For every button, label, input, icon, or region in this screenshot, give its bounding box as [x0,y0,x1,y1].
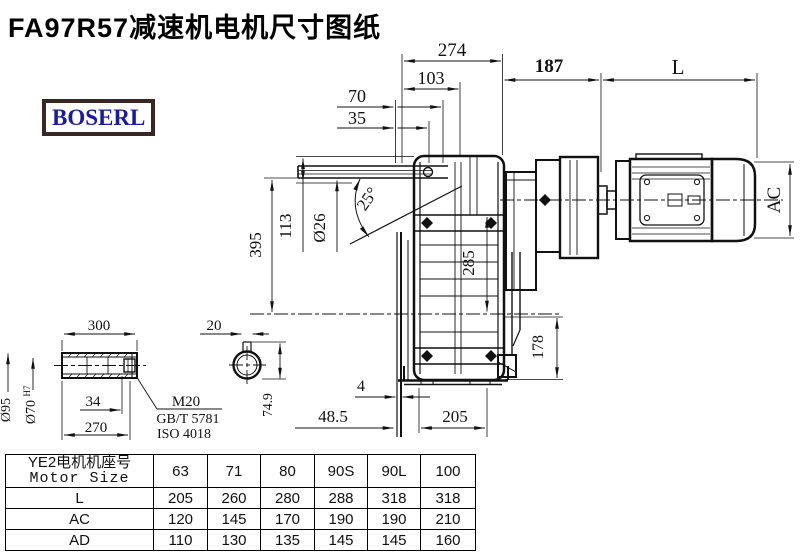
dim-205: 205 [442,407,468,426]
cell: 110 [154,530,208,551]
cell: 205 [154,488,208,509]
cell: 210 [421,509,476,530]
cell: 318 [421,488,476,509]
dim-270: 270 [85,420,108,436]
page: FA97R57减速机电机尺寸图纸 BOSERL [0,0,800,555]
cell: 190 [315,509,368,530]
dim-AC: AC [764,187,785,213]
dim-285: 285 [459,250,478,276]
dim-274: 274 [438,40,467,61]
dim-20: 20 [207,318,222,334]
dim-35: 35 [348,108,366,128]
dim-74-9: 74.9 [260,393,275,417]
col-90L: 90L [368,455,421,488]
row-label: AC [6,509,154,530]
dim-4: 4 [357,378,365,395]
cell: 120 [154,509,208,530]
header-motor-size: YE2电机机座号 Motor Size [6,455,154,488]
row-label: L [6,488,154,509]
dim-34: 34 [86,394,102,410]
dim-70: 70 [348,86,366,106]
cell: 170 [261,509,315,530]
dim-178: 178 [530,335,547,359]
dim-iso: ISO 4018 [157,427,211,442]
cell: 145 [208,509,261,530]
gearbox-housing [397,156,520,437]
cell: 145 [368,530,421,551]
cell: 160 [421,530,476,551]
dim-300: 300 [88,318,111,334]
dim-dia70-tol: H7 [22,385,32,396]
cell: 130 [208,530,261,551]
col-71: 71 [208,455,261,488]
dim-gbt: GB/T 5781 [156,412,219,427]
header-en: Motor Size [6,471,153,487]
cell: 318 [368,488,421,509]
col-90S: 90S [315,455,368,488]
col-63: 63 [154,455,208,488]
dim-113: 113 [276,214,295,239]
dim-dia95: Ø95 [0,398,14,422]
dim-m20: M20 [172,394,200,410]
col-100: 100 [421,455,476,488]
cell: 190 [368,509,421,530]
bolt-markers [421,217,497,362]
cell: 280 [261,488,315,509]
cell: 260 [208,488,261,509]
motor-size-table: YE2电机机座号 Motor Size 63 71 80 90S 90L 100… [5,454,476,551]
table-header-row: YE2电机机座号 Motor Size 63 71 80 90S 90L 100 [6,455,476,488]
col-80: 80 [261,455,315,488]
table-row-AC: AC 120 145 170 190 190 210 [6,509,476,530]
dim-395: 395 [246,232,265,258]
cell: 145 [315,530,368,551]
dim-L: L [672,55,685,79]
dim-dia70: Ø70 [24,400,39,424]
dim-48-5: 48.5 [318,407,348,426]
table-row-AD: AD 110 130 135 145 145 160 [6,530,476,551]
helical-unit-and-motor [506,154,755,290]
cell: 288 [315,488,368,509]
table-row-L: L 205 260 280 288 318 318 [6,488,476,509]
dim-187: 187 [535,56,564,77]
extension-lines [62,54,794,440]
dim-103: 103 [418,68,445,88]
dim-dia26: Ø26 [310,213,329,242]
header-cn: YE2电机机座号 [6,455,153,471]
row-label: AD [6,530,154,551]
cell: 135 [261,530,315,551]
